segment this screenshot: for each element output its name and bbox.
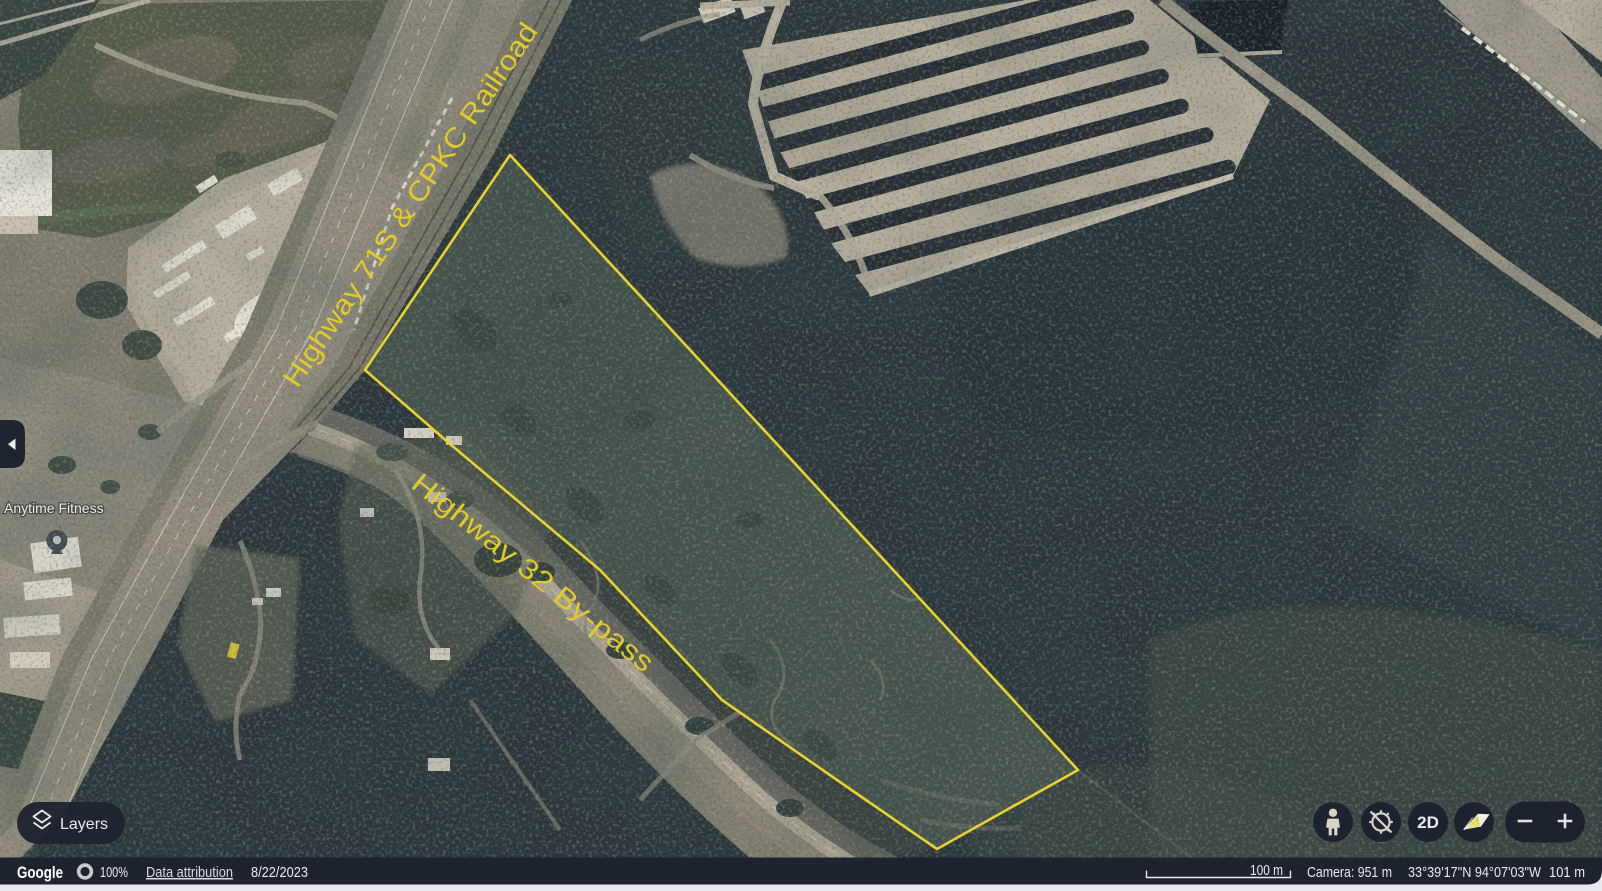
svg-text:8/22/2023: 8/22/2023 [251,864,308,881]
svg-text:Google: Google [17,863,63,882]
svg-text:Data attribution: Data attribution [146,864,233,881]
svg-text:101 m: 101 m [1549,865,1585,881]
svg-text:100%: 100% [100,864,128,881]
svg-text:2D: 2D [1417,813,1439,832]
svg-text:Camera: 951 m: Camera: 951 m [1307,865,1392,881]
svg-text:Anytime Fitness: Anytime Fitness [4,500,104,516]
svg-text:Layers: Layers [60,816,108,833]
svg-text:33°39'17"N 94°07'03"W: 33°39'17"N 94°07'03"W [1408,865,1541,881]
svg-text:100 m: 100 m [1250,863,1283,879]
